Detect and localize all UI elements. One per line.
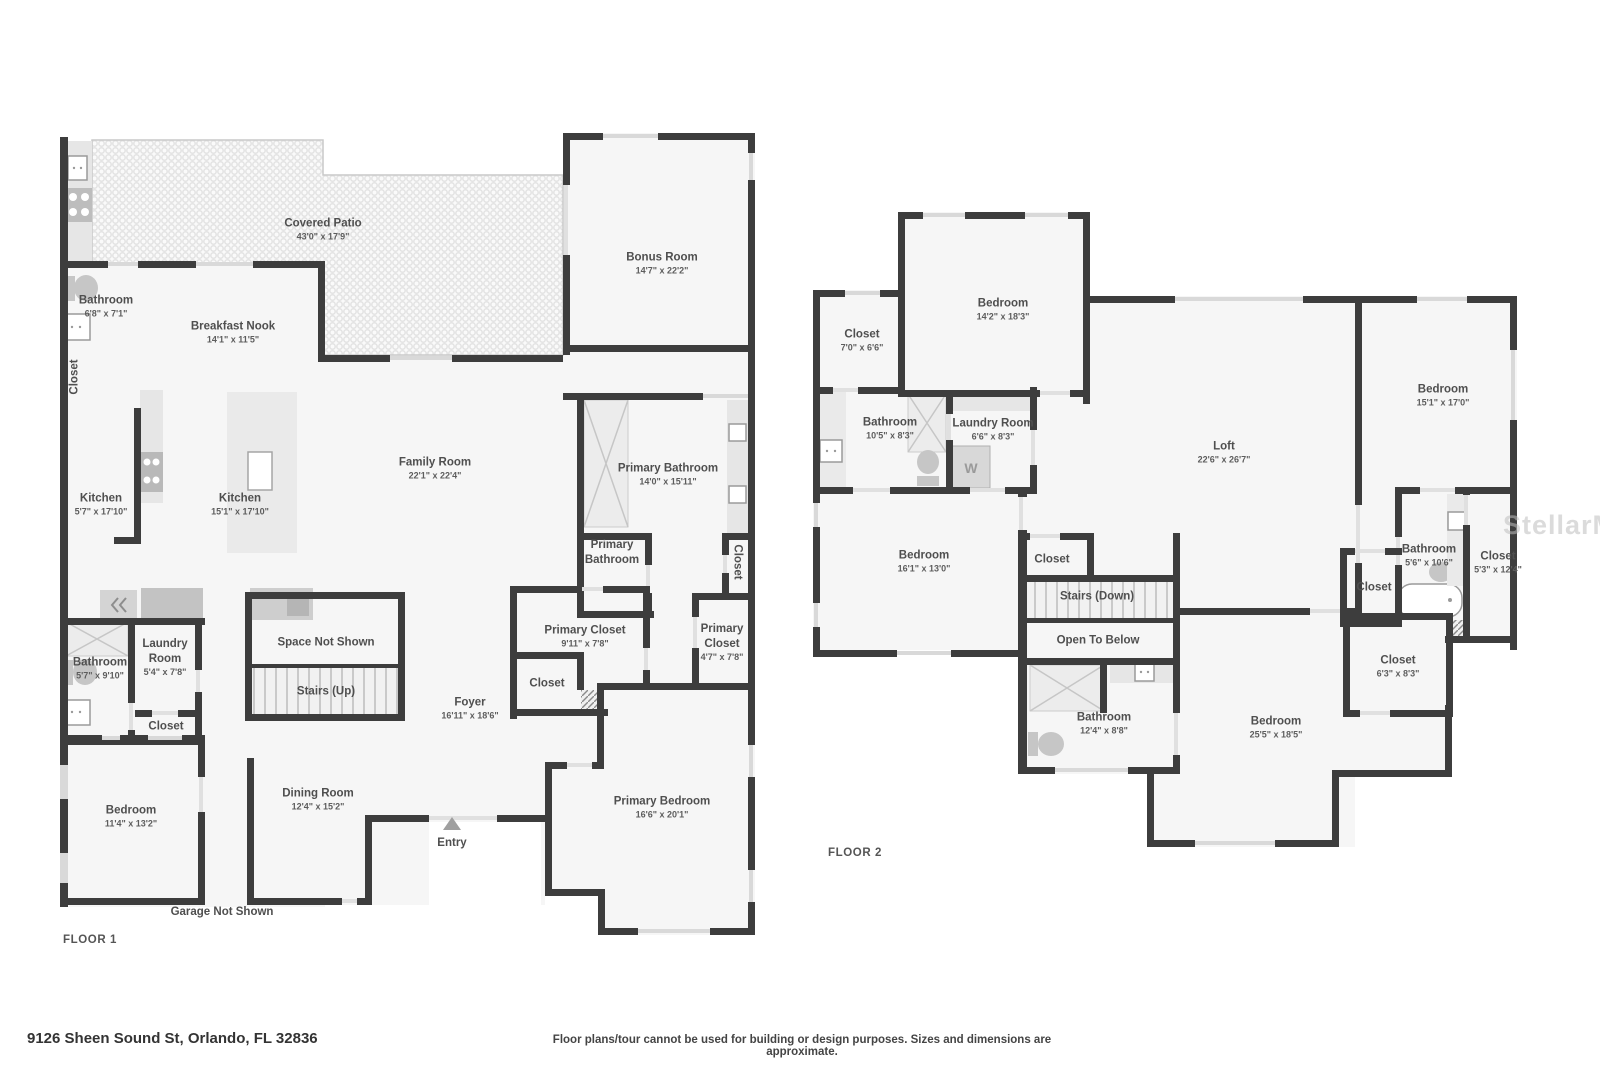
shower-icon <box>66 622 128 656</box>
toilet-icon <box>917 450 939 486</box>
room-label-primary-closet2: Primary Closet4'7" x 7'8" <box>695 622 749 664</box>
svg-text:W: W <box>964 460 978 476</box>
room-label-open-to-below: Open To Below <box>1057 634 1140 649</box>
room-label-primary-closet: Primary Closet9'11" x 7'8" <box>544 624 625 651</box>
room-label-foyer: Foyer16'11" x 18'6" <box>441 696 498 723</box>
bathtub-icon <box>1398 584 1462 617</box>
dishwasher-icon <box>248 452 272 490</box>
room-label-laundry-f2: Laundry Room6'6" x 8'3" <box>952 417 1033 444</box>
room-label-kitchen: Kitchen5'7" x 17'10" <box>75 492 128 519</box>
room-label-bedroom: Bedroom11'4" x 13'2" <box>105 804 157 831</box>
room-label-closet-laundry: Closet <box>148 720 183 735</box>
stove-icon <box>140 452 163 492</box>
toilet-icon <box>1028 732 1064 756</box>
room-label-bedroom3-f2: Bedroom16'1" x 13'0" <box>898 549 951 576</box>
room-label-stairs-up: Stairs (Up) <box>297 685 355 700</box>
floor2-label: FLOOR 2 <box>828 847 882 859</box>
shower-icon <box>1030 665 1104 711</box>
room-label-laundry-room: Laundry Room5'4" x 7'8" <box>136 637 194 679</box>
sink-icon <box>1135 663 1154 681</box>
room-label-family-room: Family Room22'1" x 22'4" <box>399 456 471 483</box>
sink-icon <box>820 440 842 462</box>
room-label-space-not-shown: Space Not Shown <box>277 636 374 651</box>
entry-label: Entry <box>437 837 466 849</box>
room-label-bedroom2-f2: Bedroom15'1" x 17'0" <box>1417 383 1470 410</box>
floor2-plan: W <box>813 212 1517 847</box>
room-label-dining-room: Dining Room12'4" x 15'2" <box>282 787 354 814</box>
room-label-covered-patio: Covered Patio43'0" x 17'9" <box>284 217 361 244</box>
room-label-closet-foyer: Closet <box>529 677 564 692</box>
room-label-primary-bedroom: Primary Bedroom16'6" x 20'1" <box>614 795 711 822</box>
room-label-bathroom3-f2: Bathroom12'4" x 8'8" <box>1077 711 1131 738</box>
fridge-icon <box>141 588 203 620</box>
room-label-bathroom: Bathroom6'8" x 7'1" <box>79 294 133 321</box>
room-label-bathroom2-f2: Bathroom5'6" x 10'6" <box>1402 543 1456 570</box>
room-label-loft: Loft22'6" x 26'7" <box>1198 440 1251 467</box>
range-icon <box>100 590 137 620</box>
room-label-closet5-f2: Closet6'3" x 8'3" <box>1377 654 1420 681</box>
room-label-bathroom1-f2: Bathroom10'5" x 8'3" <box>863 416 917 443</box>
room-label-primary-bathroom: Primary Bathroom14'0" x 15'11" <box>618 462 718 489</box>
stove-icon <box>65 188 92 222</box>
room-label-kitchen-island: Kitchen15'1" x 17'10" <box>211 492 269 519</box>
room-label-closet2-f2: Closet <box>1034 553 1069 568</box>
room-label-stairs-down: Stairs (Down) <box>1060 590 1134 605</box>
room-label-bonus-room: Bonus Room14'7" x 22'2" <box>626 251 698 278</box>
floorplan-page: W <box>0 0 1600 1066</box>
room-label-bedroom1-f2: Bedroom14'2" x 18'3" <box>977 297 1030 324</box>
room-label-bedroom4-f2: Bedroom25'5" x 18'5" <box>1250 715 1303 742</box>
room-label-breakfast-nook: Breakfast Nook14'1" x 11'5" <box>191 320 275 347</box>
garage-note: Garage Not Shown <box>171 906 274 918</box>
floor1-label: FLOOR 1 <box>63 934 117 946</box>
room-label-closet: Closet <box>730 544 745 579</box>
sink-icon <box>68 156 87 180</box>
room-label-bathroom2: Bathroom5'7" x 9'10" <box>73 656 127 683</box>
property-address: 9126 Sheen Sound St, Orlando, FL 32836 <box>27 1030 318 1047</box>
stellar-mls-watermark: StellarMLS <box>1503 510 1600 541</box>
room-label-closet4-f2: Closet <box>1356 581 1391 596</box>
room-label-closet3-f2: Closet5'3" x 12'4" <box>1474 550 1522 577</box>
room-label-closet1-f2: Closet7'0" x 6'6" <box>841 328 884 355</box>
room-label-closet: Closet <box>68 359 83 394</box>
room-label-primary-water-closet: Primary Bathroom <box>577 538 647 568</box>
disclaimer-text: Floor plans/tour cannot be used for buil… <box>552 1034 1052 1058</box>
washer-icon: W <box>952 446 990 488</box>
